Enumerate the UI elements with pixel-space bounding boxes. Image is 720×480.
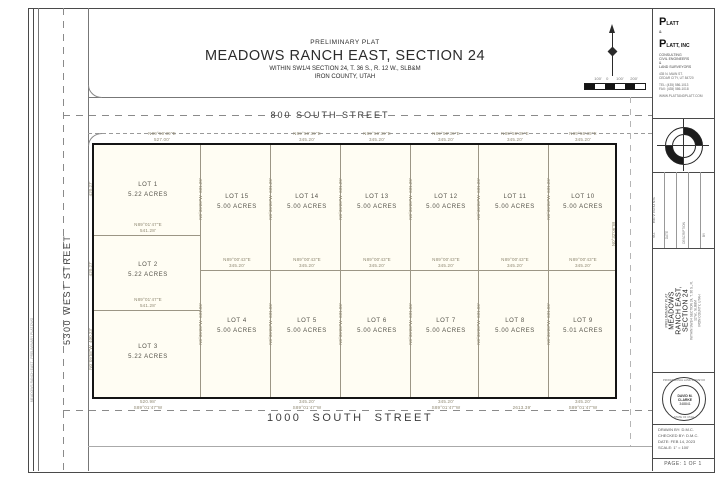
bearing-label-rotated: N0°30'20"W 631.06' [268, 302, 276, 346]
lot-number: LOT 8 [480, 317, 550, 327]
info-value: FEB 14, 2023 [671, 439, 695, 444]
lot-number: LOT 11 [480, 193, 550, 203]
bearing-label: 520.98'S89°01'47"W [118, 399, 178, 410]
bearing-label-rotated: N0°30'20"W 631.06' [408, 302, 416, 346]
seal-name: DAVID M. CLARKE [671, 394, 699, 402]
lot-number: LOT 6 [342, 317, 412, 327]
lot-parcel-12: LOT 12 5.00 ACRES [411, 193, 481, 213]
lot-line-col-h2 [94, 310, 200, 311]
firm-addr2: CEDAR CITY, UT 84720 [659, 76, 714, 80]
lot-parcel-4: LOT 4 5.00 ACRES [202, 317, 272, 337]
revision-col-line [676, 172, 677, 248]
lot-number: LOT 14 [272, 193, 342, 203]
seal-number: 348841 [679, 402, 690, 406]
sidebar-title-legal: WITHIN SW1/4 SECTION 24, T. 36 S., R. 12… [690, 279, 698, 341]
distance: 345.20' [277, 263, 337, 269]
lot-number: LOT 10 [548, 193, 618, 203]
lot-parcel-1: LOT 1 5.22 ACRES [113, 181, 183, 201]
info-label: CHECKED BY: [658, 433, 685, 438]
lot-parcel-6: LOT 6 5.00 ACRES [342, 317, 412, 337]
revisions-title: REVISIONS [651, 193, 659, 227]
surveyor-seal: PROFESSIONAL LAND SURVEYOR DAVID M. CLAR… [662, 377, 706, 421]
lot-area: 5.01 ACRES [548, 327, 618, 337]
distance: 527.00' [132, 137, 192, 143]
logo-rest: LATT [666, 21, 678, 27]
margin-plot-stamp: MEADOWS RANCH EAST - PRELIMINARY PLAT.DW… [30, 298, 36, 422]
scale-bar-labels: 100' 0 100' 200' [574, 76, 658, 81]
lot-parcel-14: LOT 14 5.00 ACRES [272, 193, 342, 213]
bearing-label-rotated: N0°30'20"W 631.06' [476, 302, 484, 346]
revision-col-header: DATE [665, 226, 671, 244]
firm-web: WWW.PLATTANDPLATT.COM [659, 94, 714, 98]
bearing-label-rotated: N0°30'20"W 631.26' [546, 177, 554, 221]
distance: 345.20' [485, 137, 545, 143]
sidebar-separator [652, 458, 714, 459]
lot-area: 5.00 ACRES [480, 327, 550, 337]
distance: 345.20' [277, 137, 337, 143]
sidebar-title-county: IRON COUNTY, UTAH [698, 279, 702, 341]
revision-col-header: BY [702, 226, 708, 244]
street-label-5300-west: 5300 WEST STREET [62, 235, 74, 345]
page-title: MEADOWS RANCH EAST, SECTION 24 [145, 48, 545, 64]
bearing-label-rotated: N0°30'20"W 631.06' [338, 302, 346, 346]
lot-number: LOT 3 [113, 343, 183, 353]
boundary-total-distance: 2613.39' [492, 405, 552, 411]
bearing: S89°01'47"W [416, 405, 476, 411]
bearing-label: 345.20'S89°01'47"W [553, 399, 613, 410]
info-label: DATE: [658, 439, 669, 444]
revisions-table: REVISIONS NO. DATE DESCRIPTION BY [652, 172, 714, 248]
firm-logo-block: PLATT & PLATT, INC CONSULTING CIVIL ENGI… [652, 8, 714, 118]
lot-area: 5.22 ACRES [113, 271, 183, 281]
bearing-label: 345.20'S89°01'47"W [277, 399, 337, 410]
road-north-top-edge-line [88, 97, 652, 98]
distance: 345.20' [347, 263, 407, 269]
bearing: S89°01'47"W [277, 405, 337, 411]
road-south-south-edge-line [88, 446, 652, 447]
street-label-800-south: 800 SOUTH STREET [230, 110, 430, 120]
lot-number: LOT 2 [113, 261, 183, 271]
bearing-label: 345.20'S89°01'47"W [416, 399, 476, 410]
lot-parcel-3: LOT 3 5.22 ACRES [113, 343, 183, 363]
bearing-label-rotated: N0°30'20"W 631.26' [338, 177, 346, 221]
info-value: D.M.C. [686, 433, 698, 438]
lot-number: LOT 5 [272, 317, 342, 327]
north-arrow-head-icon [609, 24, 615, 33]
bearing-label: N89°00'43"E345.20' [485, 257, 545, 268]
lot-number: LOT 9 [548, 317, 618, 327]
lot-parcel-8: LOT 8 5.00 ACRES [480, 317, 550, 337]
bearing-label: N89°59'39"E345.20' [553, 131, 613, 142]
title-legal-description: WITHIN SW1/4 SECTION 24, T. 36 S., R. 12… [195, 66, 495, 72]
seal-inner-ring: DAVID M. CLARKE 348841 [670, 385, 700, 415]
bearing-label-rotated: 420.27' [88, 167, 96, 211]
distance: 345.20' [553, 137, 613, 143]
bearing-label-rotated: N0°30'20"W 631.06' [546, 302, 554, 346]
firm-fax: FAX: (435) 586-1018 [659, 87, 714, 91]
bearing-label: N89°00'43"E345.20' [347, 257, 407, 268]
info-value: D.M.C. [681, 427, 693, 432]
bearing-label: N89°59'39"E527.00' [132, 131, 192, 142]
sidebar-title-rotated: PRELIMINARY PLAT MEADOWS RANCH EAST, SEC… [665, 279, 702, 341]
bearing-label: N89°01'47"E541.28' [118, 222, 178, 233]
lot-area: 5.00 ACRES [202, 203, 272, 213]
lot-area: 5.00 ACRES [548, 203, 618, 213]
info-value: 1" = 100' [673, 445, 689, 450]
firm-sub4: LAND SURVEYORS [659, 65, 714, 69]
revision-col-line [688, 172, 689, 248]
compass-cross-v [683, 119, 684, 171]
lot-line-col-h1 [94, 235, 200, 236]
lot-area: 5.00 ACRES [202, 327, 272, 337]
revision-col-header: DESCRIPTION [682, 222, 688, 244]
lot-parcel-10: LOT 10 5.00 ACRES [548, 193, 618, 213]
lot-area: 5.22 ACRES [113, 191, 183, 201]
road-west-east-edge-line [88, 8, 89, 471]
bearing-label-rotated: N0°32'06"W [611, 212, 619, 256]
distance: 345.20' [207, 263, 267, 269]
bearing-label: N89°00'43"E345.20' [416, 257, 476, 268]
bearing-label: N89°59'39"E345.20' [416, 131, 476, 142]
seal-ring-bottom-text: STATE OF UTAH [663, 416, 705, 419]
plat-sheet: { "title_block": { "pre": "PRELIMINARY P… [0, 0, 720, 480]
distance: 345.20' [347, 137, 407, 143]
lot-area: 5.22 ACRES [113, 353, 183, 363]
section-line-east [630, 97, 631, 446]
scale-bar [584, 83, 646, 90]
lot-number: LOT 7 [411, 317, 481, 327]
bearing-label: N89°59'39"E345.20' [485, 131, 545, 142]
bearing-label-rotated: N0°09'58"W 400.23' [88, 327, 96, 371]
distance: 345.20' [416, 137, 476, 143]
lot-parcel-13: LOT 13 5.00 ACRES [342, 193, 412, 213]
lot-area: 5.00 ACRES [342, 203, 412, 213]
firm-name-1: PLATT [659, 13, 714, 29]
bearing-label-rotated: N0°30'20"W 631.26' [408, 177, 416, 221]
sidebar-title-block: PRELIMINARY PLAT MEADOWS RANCH EAST, SEC… [652, 248, 714, 372]
title-preliminary-plat: PRELIMINARY PLAT [195, 39, 495, 46]
bearing-label-rotated: N0°30'20"W 631.06' [198, 302, 206, 346]
lot-area: 5.00 ACRES [272, 327, 342, 337]
info-label: DRAWN BY: [658, 427, 680, 432]
distance: 541.28' [118, 303, 178, 309]
page-number: PAGE: 1 OF 1 [652, 461, 714, 467]
street-label-1000-south: 1000 SOUTH STREET [230, 412, 470, 424]
bearing-label: N89°01'47"E541.28' [118, 297, 178, 308]
revision-col-header: NO. [652, 226, 658, 244]
lot-number: LOT 15 [202, 193, 272, 203]
distance: 541.28' [118, 228, 178, 234]
lot-parcel-11: LOT 11 5.00 ACRES [480, 193, 550, 213]
lot-number: LOT 1 [113, 181, 183, 191]
info-row: SCALE: 1" = 100' [658, 445, 714, 451]
lot-parcel-2: LOT 2 5.22 ACRES [113, 261, 183, 281]
lot-area: 5.00 ACRES [411, 327, 481, 337]
distance: 345.20' [485, 263, 545, 269]
lot-number: LOT 4 [202, 317, 272, 327]
drawing-info-block: DRAWN BY: D.M.C. CHECKED BY: D.M.C. DATE… [652, 424, 714, 458]
bearing-label: N89°00'43"E345.20' [277, 257, 337, 268]
lot-parcel-9: LOT 9 5.01 ACRES [548, 317, 618, 337]
lot-area: 5.00 ACRES [411, 203, 481, 213]
title-county: IRON COUNTY, UTAH [195, 74, 495, 80]
lot-line-mid-horizontal [200, 270, 615, 271]
bearing-label: N89°59'39"E345.20' [347, 131, 407, 142]
bearing-label: N89°00'43"E345.20' [207, 257, 267, 268]
sidebar-title-main: MEADOWS RANCH EAST, SECTION 24 [669, 279, 690, 341]
bearing-label: N89°00'43"E345.20' [553, 257, 613, 268]
sidebar-separator [652, 372, 714, 373]
lot-parcel-5: LOT 5 5.00 ACRES [272, 317, 342, 337]
bearing: S89°01'47"W [118, 405, 178, 411]
lot-area: 5.00 ACRES [272, 203, 342, 213]
lot-area: 5.00 ACRES [342, 327, 412, 337]
distance: 345.20' [416, 263, 476, 269]
distance: 345.20' [553, 263, 613, 269]
revision-col-line [700, 172, 701, 248]
lot-area: 5.00 ACRES [480, 203, 550, 213]
bearing: S89°01'47"W [553, 405, 613, 411]
bearing-label-rotated: N0°30'20"W 631.26' [476, 177, 484, 221]
lot-number: LOT 13 [342, 193, 412, 203]
compass-inner [672, 134, 696, 158]
bearing-label: N89°59'39"E345.20' [277, 131, 337, 142]
road-west-edge-line [38, 8, 39, 471]
plat-boundary: LOT 1 5.22 ACRES LOT 2 5.22 ACRES LOT 3 … [92, 143, 617, 399]
bearing-label-rotated: N0°30'20"W 631.26' [198, 177, 206, 221]
firm-name-2: PLATT, INC [659, 35, 714, 51]
bearing-label-rotated: 420.27' [88, 247, 96, 291]
lot-parcel-7: LOT 7 5.00 ACRES [411, 317, 481, 337]
info-label: SCALE: [658, 445, 672, 450]
logo-rest: LATT, INC [666, 43, 689, 49]
seal-ring-top-text: PROFESSIONAL LAND SURVEYOR [663, 379, 705, 382]
lot-number: LOT 12 [411, 193, 481, 203]
lot-parcel-15: LOT 15 5.00 ACRES [202, 193, 272, 213]
bearing-label-rotated: N0°30'20"W 631.26' [268, 177, 276, 221]
